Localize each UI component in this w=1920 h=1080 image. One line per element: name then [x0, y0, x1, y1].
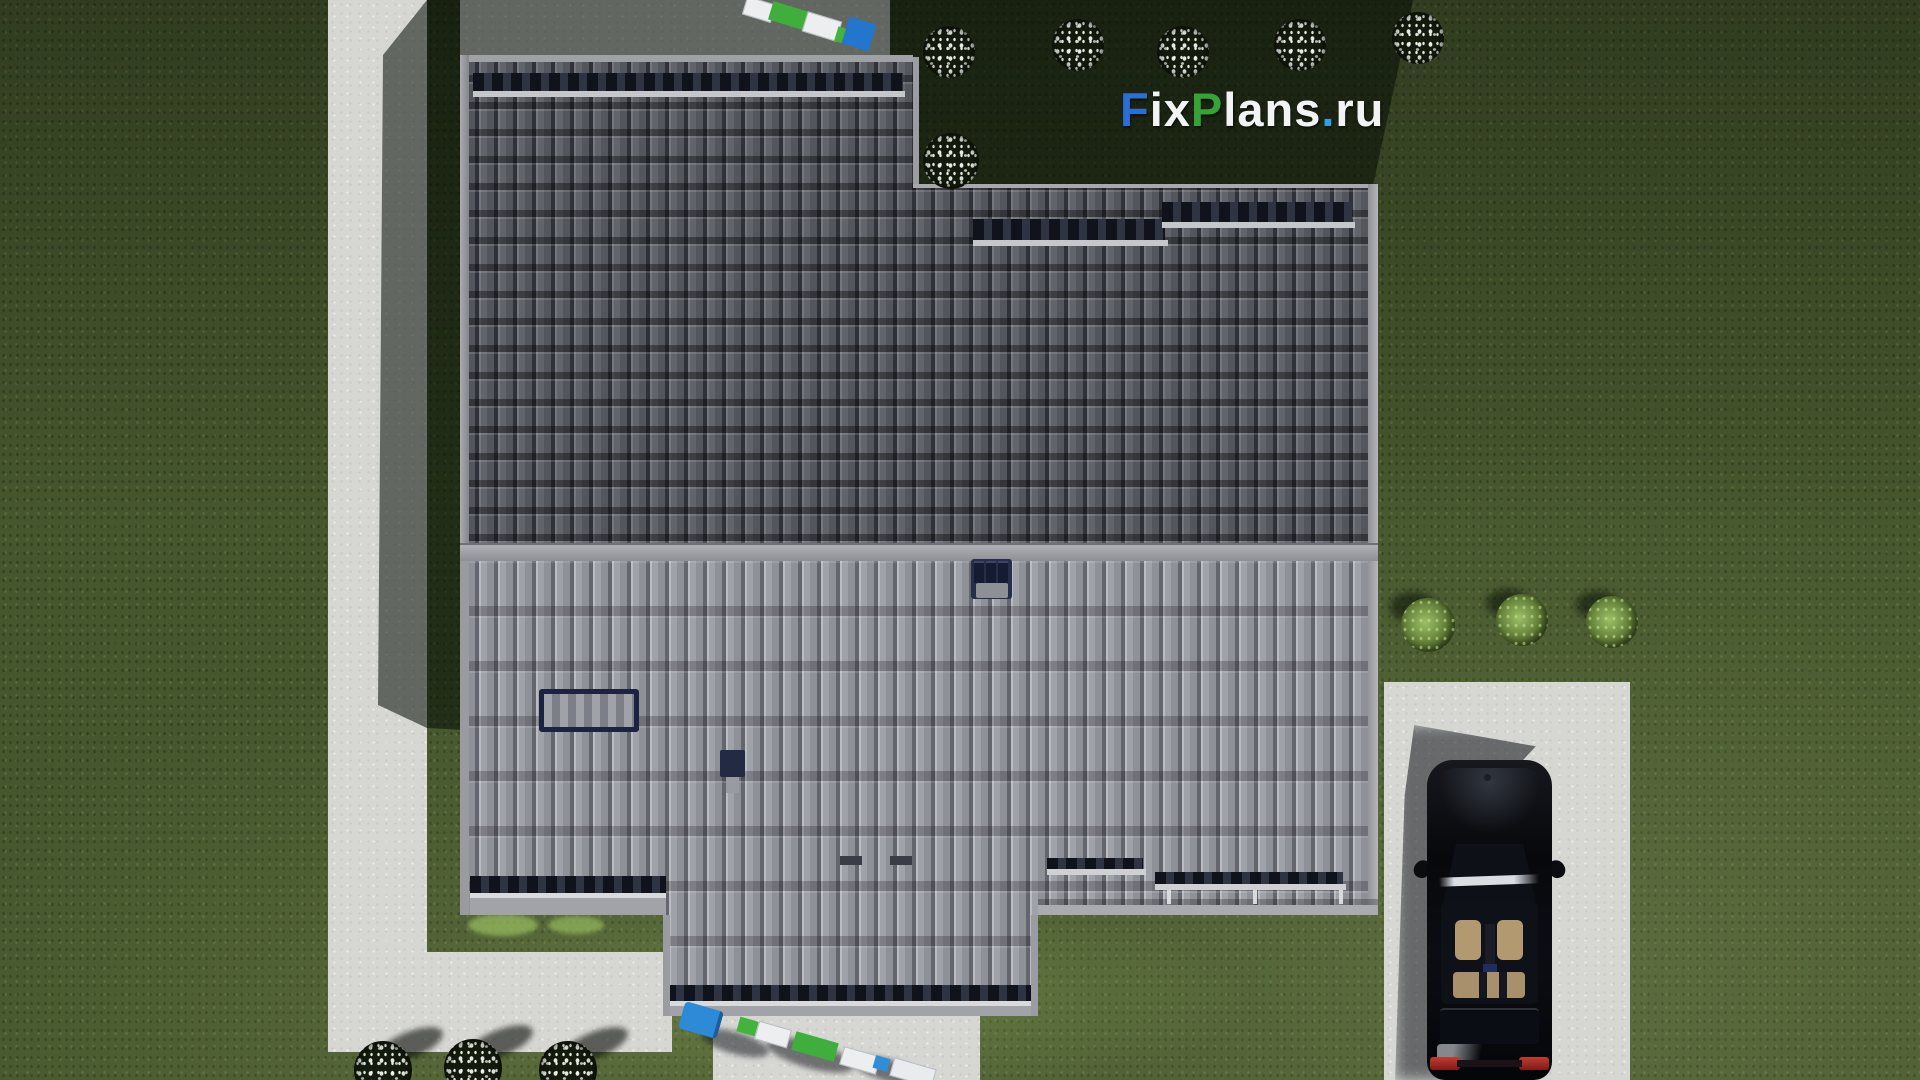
car-hood-dot: [1484, 774, 1491, 781]
roof-vent-pipe: [726, 777, 739, 793]
plant-tuft: [548, 916, 604, 934]
roof-step-shadow-band-1: [973, 219, 1165, 242]
delivery-truck-top: [730, 0, 890, 64]
fascia-right: [1038, 905, 1378, 915]
car-rear-window: [1440, 1008, 1539, 1044]
car-center-console: [1485, 924, 1495, 968]
eave-shadow-left: [470, 876, 666, 894]
flowering-shrub: [1157, 26, 1209, 78]
watermark-segment: F: [1120, 83, 1150, 136]
car-cabin: [1441, 902, 1538, 1004]
plant-tuft: [468, 914, 538, 936]
car-windshield: [1437, 844, 1542, 902]
porch-right-fascia: [1031, 915, 1038, 1016]
lower-step-trim-1: [1047, 869, 1146, 875]
roof-lower-right-fascia: [1368, 561, 1378, 915]
roof-dark-dash: [890, 856, 912, 865]
car-seat-front-right: [1497, 920, 1523, 960]
roof-window: [539, 689, 639, 732]
car-taillight-left: [1430, 1057, 1460, 1070]
downspout-tick: [1253, 890, 1257, 904]
roof-upper-eave-trim: [473, 91, 905, 97]
truck-container-white: [889, 1057, 937, 1080]
aerial-house-render: FixPlans.ru: [0, 0, 1920, 1080]
watermark-segment: P: [1191, 83, 1223, 136]
chimney-base: [976, 583, 1008, 598]
flowering-shrub: [923, 26, 975, 78]
watermark-segment: ix: [1150, 83, 1191, 136]
downspout-tick: [1339, 890, 1343, 904]
porch-left-fascia: [663, 915, 670, 1016]
chimney-pipe: [974, 561, 984, 583]
chimney-pipe: [986, 561, 996, 583]
flowering-shrub: [1392, 12, 1444, 64]
truck-container-white: [754, 1021, 792, 1049]
roof-upper-eave-shadow: [473, 73, 903, 93]
car-taillight-right: [1519, 1057, 1549, 1070]
watermark-segment: .: [1321, 83, 1335, 136]
roof-dark-dash: [840, 856, 862, 865]
flowering-shrub: [1052, 19, 1104, 71]
downspout-tick: [1167, 890, 1171, 904]
roof-vent: [720, 750, 745, 777]
car-taillight-bar: [1457, 1060, 1522, 1067]
roof-upper-right-fascia: [1368, 184, 1378, 552]
lower-step-trim-2: [1155, 884, 1346, 890]
fascia-left: [470, 898, 666, 915]
roof-step-trim-1: [973, 240, 1168, 246]
flowering-shrub: [1274, 19, 1326, 71]
flowering-shrub: [923, 133, 979, 189]
car-seat-rear: [1453, 972, 1525, 998]
green-shrub: [1586, 596, 1638, 648]
car-rear-gap: [1499, 972, 1507, 998]
chimney: [971, 559, 1012, 599]
watermark-segment: ru: [1335, 83, 1384, 136]
truck-cab-blue: [678, 1001, 724, 1039]
delivery-truck-bottom: [670, 996, 950, 1080]
truck-container-green: [791, 1031, 839, 1061]
truck-container-blue: [842, 17, 877, 52]
black-car: [1427, 760, 1552, 1080]
green-shrub: [1401, 598, 1455, 652]
watermark-segment: lans: [1223, 83, 1321, 136]
chimney-pipe: [998, 561, 1008, 583]
fixplans-watermark: FixPlans.ru: [1120, 86, 1384, 133]
roof-step-trim-2: [1162, 222, 1355, 228]
roof-lower-left-fascia: [460, 561, 469, 915]
roof-step-shadow-band-2: [1162, 202, 1352, 224]
green-shrub: [1496, 594, 1548, 646]
car-seat-front-left: [1455, 920, 1481, 960]
truck-container-green: [768, 1, 808, 30]
car-rear-gap: [1479, 972, 1487, 998]
roof-upper-left-fascia: [460, 55, 469, 552]
